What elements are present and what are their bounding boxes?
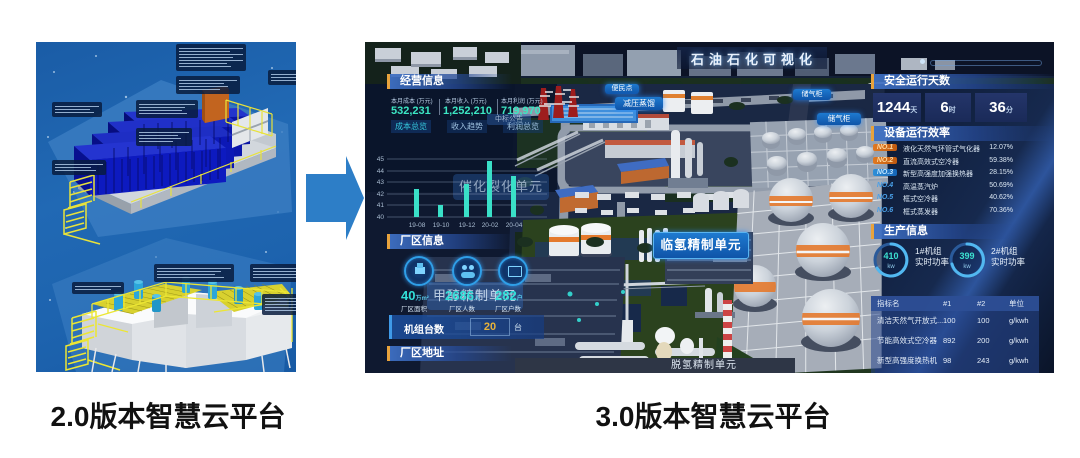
svg-text:41: 41 bbox=[377, 202, 385, 209]
svg-text:43: 43 bbox=[377, 179, 385, 186]
svg-text:kw: kw bbox=[963, 264, 971, 270]
svg-text:20-04: 20-04 bbox=[506, 222, 523, 229]
svg-text:399: 399 bbox=[959, 251, 974, 261]
svg-text:kw: kw bbox=[887, 264, 895, 270]
svg-text:20-02: 20-02 bbox=[482, 222, 499, 229]
svg-text:40: 40 bbox=[377, 214, 385, 221]
svg-text:45: 45 bbox=[377, 156, 385, 163]
svg-text:19-08: 19-08 bbox=[409, 222, 426, 229]
svg-text:410: 410 bbox=[883, 251, 898, 261]
svg-text:19-10: 19-10 bbox=[433, 222, 450, 229]
svg-text:19-12: 19-12 bbox=[459, 222, 476, 229]
svg-text:44: 44 bbox=[377, 168, 385, 175]
svg-text:42: 42 bbox=[377, 191, 385, 198]
